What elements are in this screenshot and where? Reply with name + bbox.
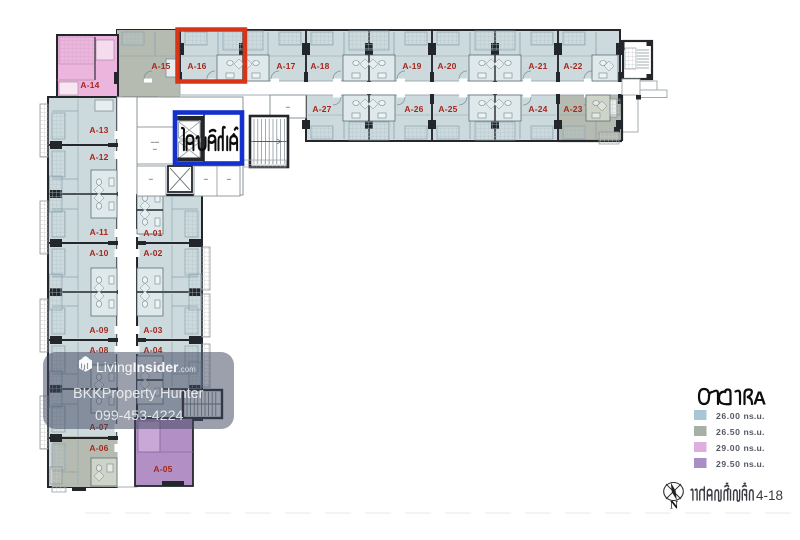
svg-text:A-24: A-24: [528, 104, 547, 114]
svg-text:▬: ▬: [153, 146, 157, 151]
svg-text:26.00 ns.u.: 26.00 ns.u.: [716, 411, 765, 421]
svg-text:BKKProperty Hunter: BKKProperty Hunter: [73, 386, 204, 402]
svg-text:A-11: A-11: [90, 227, 109, 237]
svg-text:A-19: A-19: [402, 61, 421, 71]
svg-text:A-23: A-23: [563, 104, 582, 114]
svg-text:A-25: A-25: [438, 104, 457, 114]
svg-text:A-20: A-20: [437, 61, 456, 71]
svg-text:A-12: A-12: [89, 152, 108, 162]
svg-text:A-22: A-22: [563, 61, 582, 71]
svg-text:29.00 ns.u.: 29.00 ns.u.: [716, 443, 765, 453]
svg-text:A-01: A-01: [143, 228, 162, 238]
svg-text:A-18: A-18: [310, 61, 329, 71]
svg-text:A-17: A-17: [276, 61, 295, 71]
svg-text:4-18: 4-18: [756, 488, 783, 503]
svg-text:A-16: A-16: [187, 61, 206, 71]
svg-text:▬▬: ▬▬: [151, 139, 159, 144]
svg-text:N: N: [670, 500, 679, 512]
svg-text:A-10: A-10: [89, 248, 108, 258]
svg-text:A-09: A-09: [89, 325, 108, 335]
svg-text:26.50 ns.u.: 26.50 ns.u.: [716, 427, 765, 437]
svg-text:A-14: A-14: [80, 80, 99, 90]
svg-text:A-13: A-13: [89, 125, 108, 135]
svg-text:▬: ▬: [204, 176, 208, 181]
svg-text:29.50 ns.u.: 29.50 ns.u.: [716, 459, 765, 469]
svg-text:A-21: A-21: [528, 61, 547, 71]
svg-text:▬: ▬: [149, 176, 153, 181]
svg-text:A-27: A-27: [312, 104, 331, 114]
svg-text:▬: ▬: [286, 104, 290, 109]
svg-text:A-06: A-06: [89, 443, 108, 453]
svg-text:A-03: A-03: [143, 325, 162, 335]
svg-text:A-15: A-15: [151, 61, 170, 71]
svg-text:099-453-4224: 099-453-4224: [95, 408, 183, 424]
svg-text:A-02: A-02: [143, 248, 162, 258]
svg-text:A: A: [753, 388, 766, 409]
svg-text:A-26: A-26: [404, 104, 423, 114]
svg-text:▬: ▬: [227, 176, 231, 181]
svg-text:A-05: A-05: [153, 464, 172, 474]
